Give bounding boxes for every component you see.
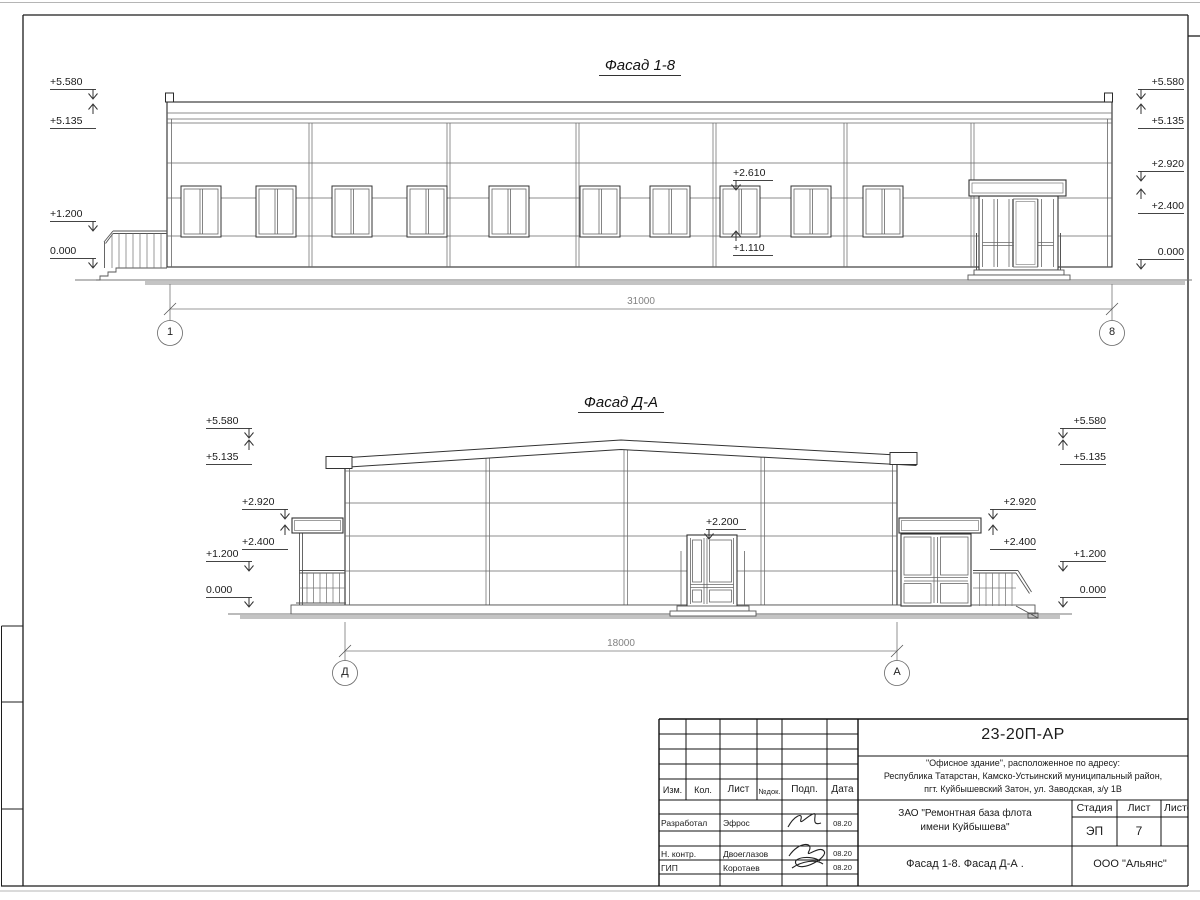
client-line: ЗАО "Ремонтная база флота: [858, 808, 1072, 819]
elevation-arrow-icon: [1135, 103, 1147, 114]
elevation-arrow-icon: [243, 428, 255, 439]
elevation-value: 0.000: [1060, 584, 1106, 598]
col-ndok: №док.: [757, 787, 782, 796]
elevation-value: +2.920: [242, 496, 288, 510]
elevation-arrow-icon: [730, 230, 742, 241]
elevation-arrow-icon: [1135, 259, 1147, 270]
elevation-mark: +5.135: [50, 115, 96, 128]
sheets-label: Листов: [1164, 802, 1188, 814]
facade-1-8-dimension: [158, 284, 1125, 346]
elevation-arrow-icon: [87, 258, 99, 269]
elevation-mark: 0.000: [50, 245, 96, 258]
elevation-value: +1.200: [1060, 548, 1106, 562]
elevation-mark: +1.200: [50, 208, 96, 221]
col-kol: Кол.: [686, 785, 720, 795]
drawing-sheet: Фасад 1-8 Фасад Д-А 31000 18000 1 8 Д А …: [0, 0, 1200, 900]
elevation-mark: +5.580: [1060, 415, 1106, 428]
elevation-value: +5.135: [50, 115, 96, 129]
elevation-arrow-icon: [987, 524, 999, 535]
col-izm: Изм.: [659, 785, 686, 795]
address-line: Республика Татарстан, Камско-Устьинский …: [858, 771, 1188, 781]
elevation-value: +5.580: [50, 76, 96, 90]
elevation-value: +5.135: [1060, 451, 1106, 465]
elevation-mark: +5.135: [1138, 115, 1184, 128]
elevation-value: +1.200: [50, 208, 96, 222]
axis-bubble-d: Д: [332, 666, 358, 678]
address-line: пгт. Куйбышевский Затон, ул. Заводская, …: [858, 784, 1188, 794]
elevation-mark: +5.580: [1138, 76, 1184, 89]
sheet-label: Лист: [1117, 802, 1161, 814]
elevation-mark: +2.920: [242, 496, 288, 509]
facade-d-a-title: Фасад Д-А: [521, 394, 721, 413]
col-podp: Подп.: [782, 784, 827, 795]
row-role: Разработал: [661, 818, 719, 828]
elevation-arrow-icon: [243, 561, 255, 572]
elevation-mark: 0.000: [1060, 584, 1106, 597]
elevation-arrow-icon: [243, 439, 255, 450]
elevation-value: +5.580: [1060, 415, 1106, 429]
signature: [789, 844, 825, 868]
window: [256, 186, 296, 237]
elevation-mark: +2.400: [1138, 200, 1184, 213]
porch-glazing: [901, 534, 971, 606]
axis-bubble-a: А: [884, 666, 910, 678]
elevation-value: +5.135: [1138, 115, 1184, 129]
elevation-mark: +5.135: [1060, 451, 1106, 464]
row-role: ГИП: [661, 863, 719, 873]
row-name: Коротаев: [723, 863, 781, 873]
window: [407, 186, 447, 237]
elevation-mark: +2.400: [990, 536, 1036, 549]
row-date: 08.20: [827, 819, 858, 828]
elevation-arrow-icon: [1057, 439, 1069, 450]
elevation-value: +2.400: [990, 536, 1036, 550]
elevation-arrow-icon: [1135, 171, 1147, 182]
window: [650, 186, 690, 237]
elevation-arrow-icon: [1135, 89, 1147, 100]
axis-bubble-8: 8: [1099, 326, 1125, 338]
entrance-steps: [974, 270, 1064, 275]
elevation-arrow-icon: [87, 221, 99, 232]
facade-d-a-dimension: [333, 622, 910, 686]
client-line: имени Куйбышева": [858, 822, 1072, 833]
elevation-arrow-icon: [87, 89, 99, 100]
sheet-value: 7: [1117, 824, 1161, 838]
elevation-arrow-icon: [987, 509, 999, 520]
elevation-mark: 0.000: [1138, 246, 1184, 259]
window-bottom-elevation-mark: +1.110: [733, 242, 773, 255]
door-steps: [677, 606, 749, 611]
address-line: "Офисное здание", расположенное по адрес…: [858, 758, 1188, 768]
dimension-18000: 18000: [571, 638, 671, 649]
company-name: ООО "Альянс": [1072, 858, 1188, 870]
stage-label: Стадия: [1072, 802, 1117, 814]
ground-strip: [145, 281, 1185, 285]
row-date: 08.20: [827, 863, 858, 872]
elevation-value: +5.580: [1138, 76, 1184, 90]
stage-value: ЭП: [1072, 824, 1117, 838]
elevation-value: +1.110: [733, 242, 773, 256]
facade-1-8-title: Фасад 1-8: [540, 57, 740, 76]
elevation-value: +1.200: [206, 548, 252, 562]
elevation-arrow-icon: [730, 180, 742, 191]
elevation-value: 0.000: [1138, 246, 1184, 260]
facade-1-8-drawing: [75, 93, 1192, 346]
signature: [788, 814, 821, 827]
elevation-value: +2.920: [990, 496, 1036, 510]
elevation-mark: +1.200: [1060, 548, 1106, 561]
elevation-value: +5.135: [206, 451, 252, 465]
elevation-arrow-icon: [279, 524, 291, 535]
elevation-value: +5.580: [206, 415, 252, 429]
elevation-arrow-icon: [279, 509, 291, 520]
elevation-mark: +5.135: [206, 451, 252, 464]
window: [863, 186, 903, 237]
facade-d-a-right-porch: [899, 518, 1038, 618]
sheet-title: Фасад 1-8. Фасад Д-А .: [858, 858, 1072, 870]
row-role: Н. контр.: [661, 849, 719, 859]
elevation-value: 0.000: [50, 245, 96, 259]
row-date: 08.20: [827, 849, 858, 858]
elevation-arrow-icon: [703, 529, 715, 540]
elevation-value: +2.920: [1138, 158, 1184, 172]
elevation-value: +2.200: [706, 516, 746, 530]
elevation-arrow-icon: [87, 103, 99, 114]
window: [489, 186, 529, 237]
col-list: Лист: [720, 784, 757, 795]
window: [181, 186, 221, 237]
elevation-value: +2.400: [1138, 200, 1184, 214]
elevation-mark: +2.920: [1138, 158, 1184, 171]
elevation-arrow-icon: [1057, 597, 1069, 608]
doc-number: 23-20П-АР: [858, 726, 1188, 744]
facade-1-8-stairs: [96, 231, 167, 280]
door-leaf: [1014, 199, 1038, 267]
entrance-canopy: [969, 180, 1066, 196]
row-name: Эфрос: [723, 818, 781, 828]
ground-strip: [240, 615, 1060, 619]
elevation-value: 0.000: [206, 584, 252, 598]
window-top-elevation-mark: +2.610: [733, 167, 773, 180]
elevation-arrow-icon: [1057, 428, 1069, 439]
elevation-mark: +1.200: [206, 548, 252, 561]
facade-1-8-entrance: [968, 180, 1070, 280]
window: [791, 186, 831, 237]
elevation-mark: +2.920: [990, 496, 1036, 509]
dimension-31000: 31000: [591, 296, 691, 307]
elevation-value: +2.610: [733, 167, 773, 181]
door-elevation-mark: +2.200: [706, 516, 746, 529]
row-name: Двоеглазов: [723, 849, 785, 859]
elevation-mark: 0.000: [206, 584, 252, 597]
elevation-arrow-icon: [1057, 561, 1069, 572]
col-data: Дата: [827, 784, 858, 795]
elevation-mark: +5.580: [206, 415, 252, 428]
window: [580, 186, 620, 237]
elevation-mark: +5.580: [50, 76, 96, 89]
axis-bubble-1: 1: [157, 326, 183, 338]
elevation-arrow-icon: [1135, 188, 1147, 199]
facade-d-a-left-porch: [292, 518, 346, 605]
window: [332, 186, 372, 237]
elevation-arrow-icon: [243, 597, 255, 608]
